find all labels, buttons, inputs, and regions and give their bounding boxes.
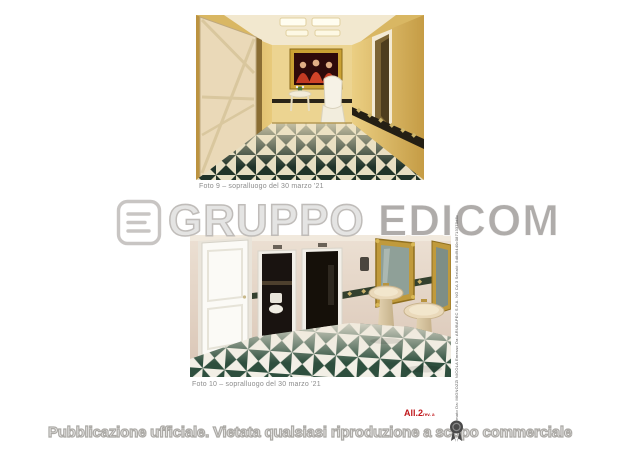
right-wall-doorway	[372, 29, 392, 131]
stall-doorway-right	[302, 243, 342, 337]
attachment-label: All.2rev. a	[404, 408, 434, 418]
stall-doorway-left	[258, 245, 296, 339]
draped-chair	[321, 76, 345, 127]
edicom-e-logo-icon	[116, 199, 162, 251]
door-plaque	[273, 245, 282, 249]
door-plaque	[318, 243, 327, 247]
footer-banner: Pubblicazione ufficiale. Vietata qualsia…	[0, 424, 620, 448]
attachment-label-text: All.2	[404, 408, 423, 418]
photo-foto-9	[196, 15, 424, 180]
photo-caption-foto-9: Foto 9 – sopralluogo del 30 marzo '21	[199, 183, 324, 190]
footer-banner-text: Pubblicazione ufficiale. Vietata qualsia…	[48, 424, 572, 441]
soap-dispenser	[360, 257, 369, 271]
photo-caption-foto-10: Foto 10 – sopralluogo del 30 marzo '21	[192, 381, 321, 388]
photo-foto-10	[190, 235, 451, 377]
digital-signature-stamp: Firmato Da: MIGNOZZI NICOLA Emesso Da: A…	[454, 230, 462, 425]
attachment-label-suffix: rev. a	[423, 412, 434, 417]
document-page: Foto 9 – sopralluogo del 30 marzo '21 GR…	[0, 0, 620, 450]
